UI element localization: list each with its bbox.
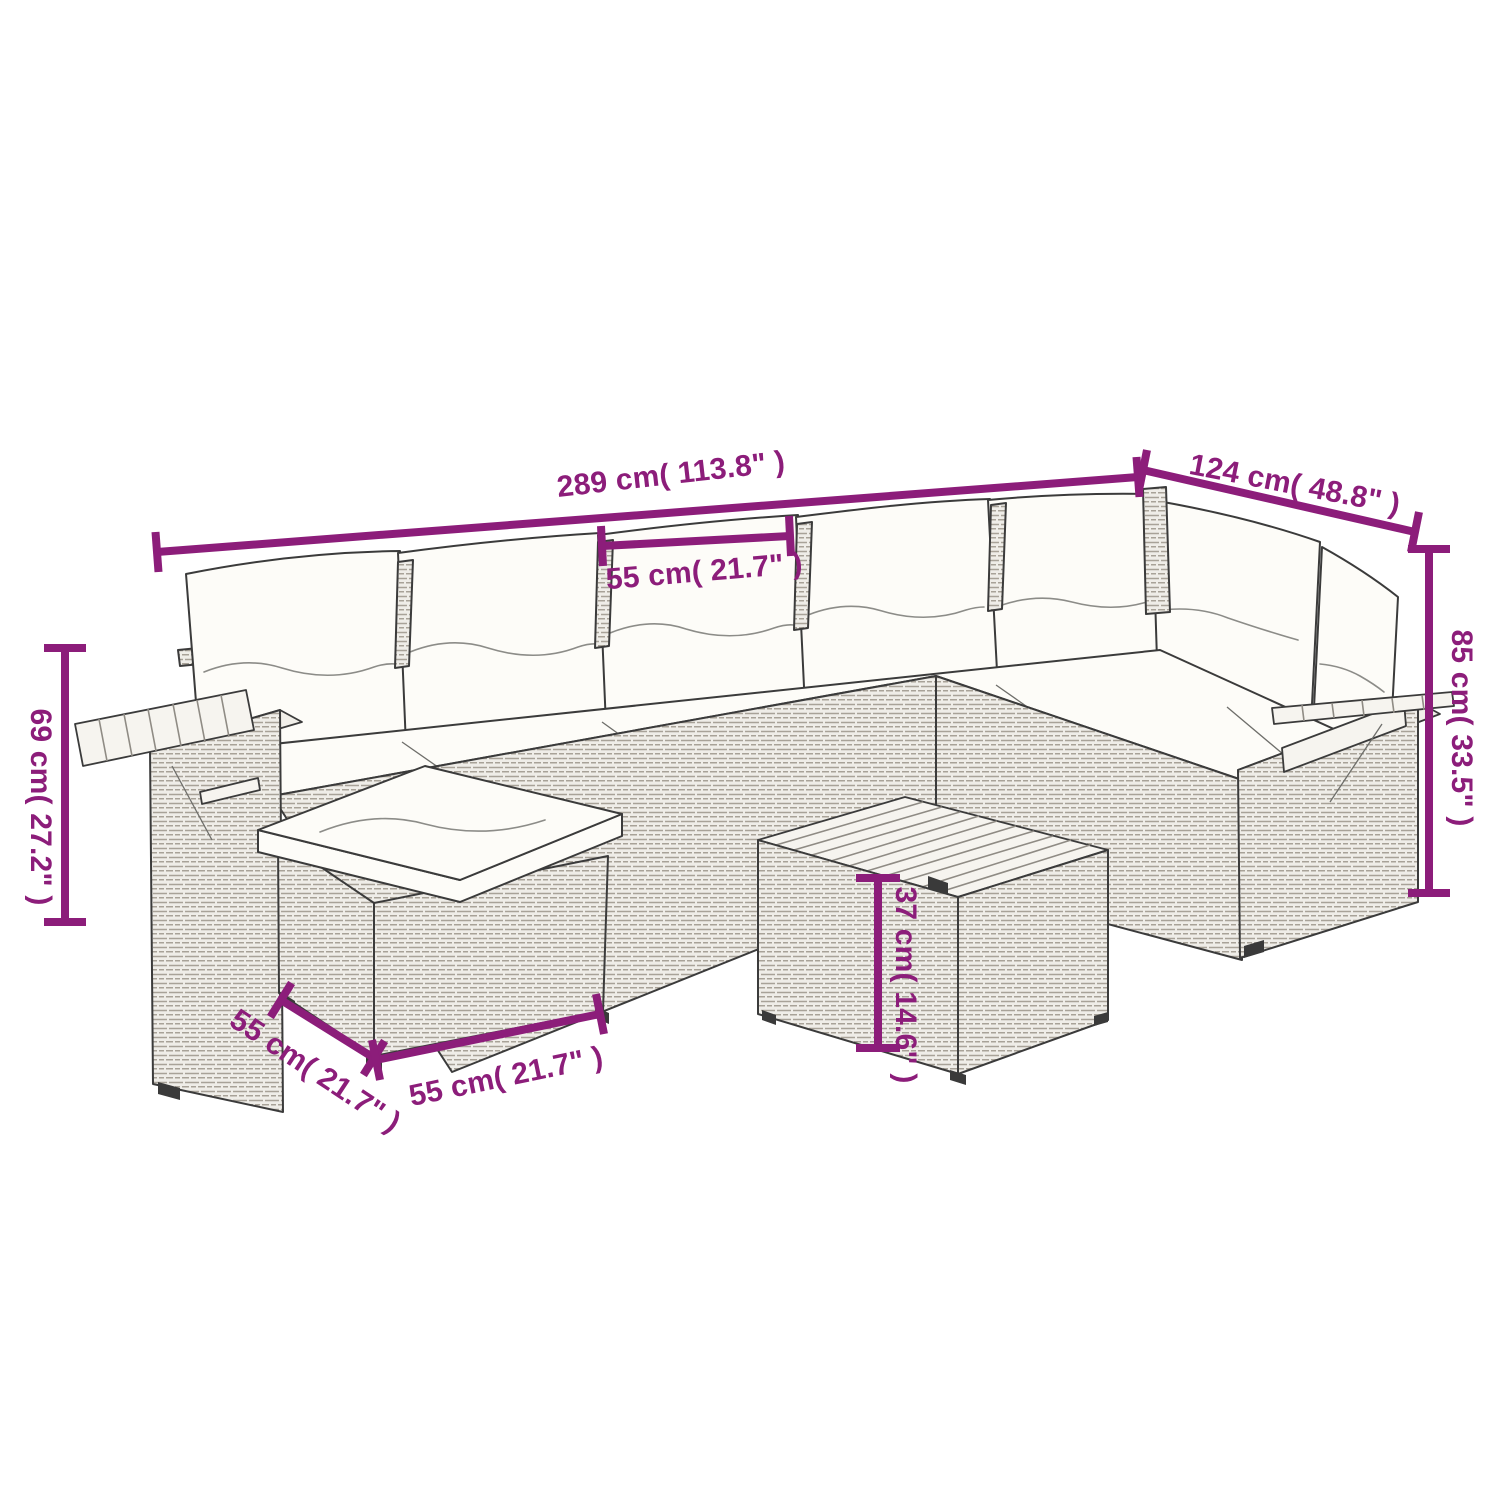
coffee-table-illustration [758,797,1108,1074]
dim-label-table-height: 37 cm( 14.6" ) [889,886,922,1083]
dimension-diagram-canvas: 289 cm( 113.8" ) 124 cm( 48.8" ) 55 cm( … [0,0,1500,1500]
product-dimension-diagram: 289 cm( 113.8" ) 124 cm( 48.8" ) 55 cm( … [0,0,1500,1500]
back-frame-post [988,503,1006,611]
dim-label-arm-height: 69 cm( 27.2" ) [24,708,57,905]
dim-label-total-height: 85 cm( 33.5" ) [1445,629,1478,826]
dim-label-overall-depth: 124 cm( 48.8" ) [1187,448,1403,521]
back-frame-post [1143,487,1170,614]
dim-label-overall-width: 289 cm( 113.8" ) [555,445,787,504]
back-frame-post [395,560,413,668]
ottoman-illustration [258,766,622,1056]
